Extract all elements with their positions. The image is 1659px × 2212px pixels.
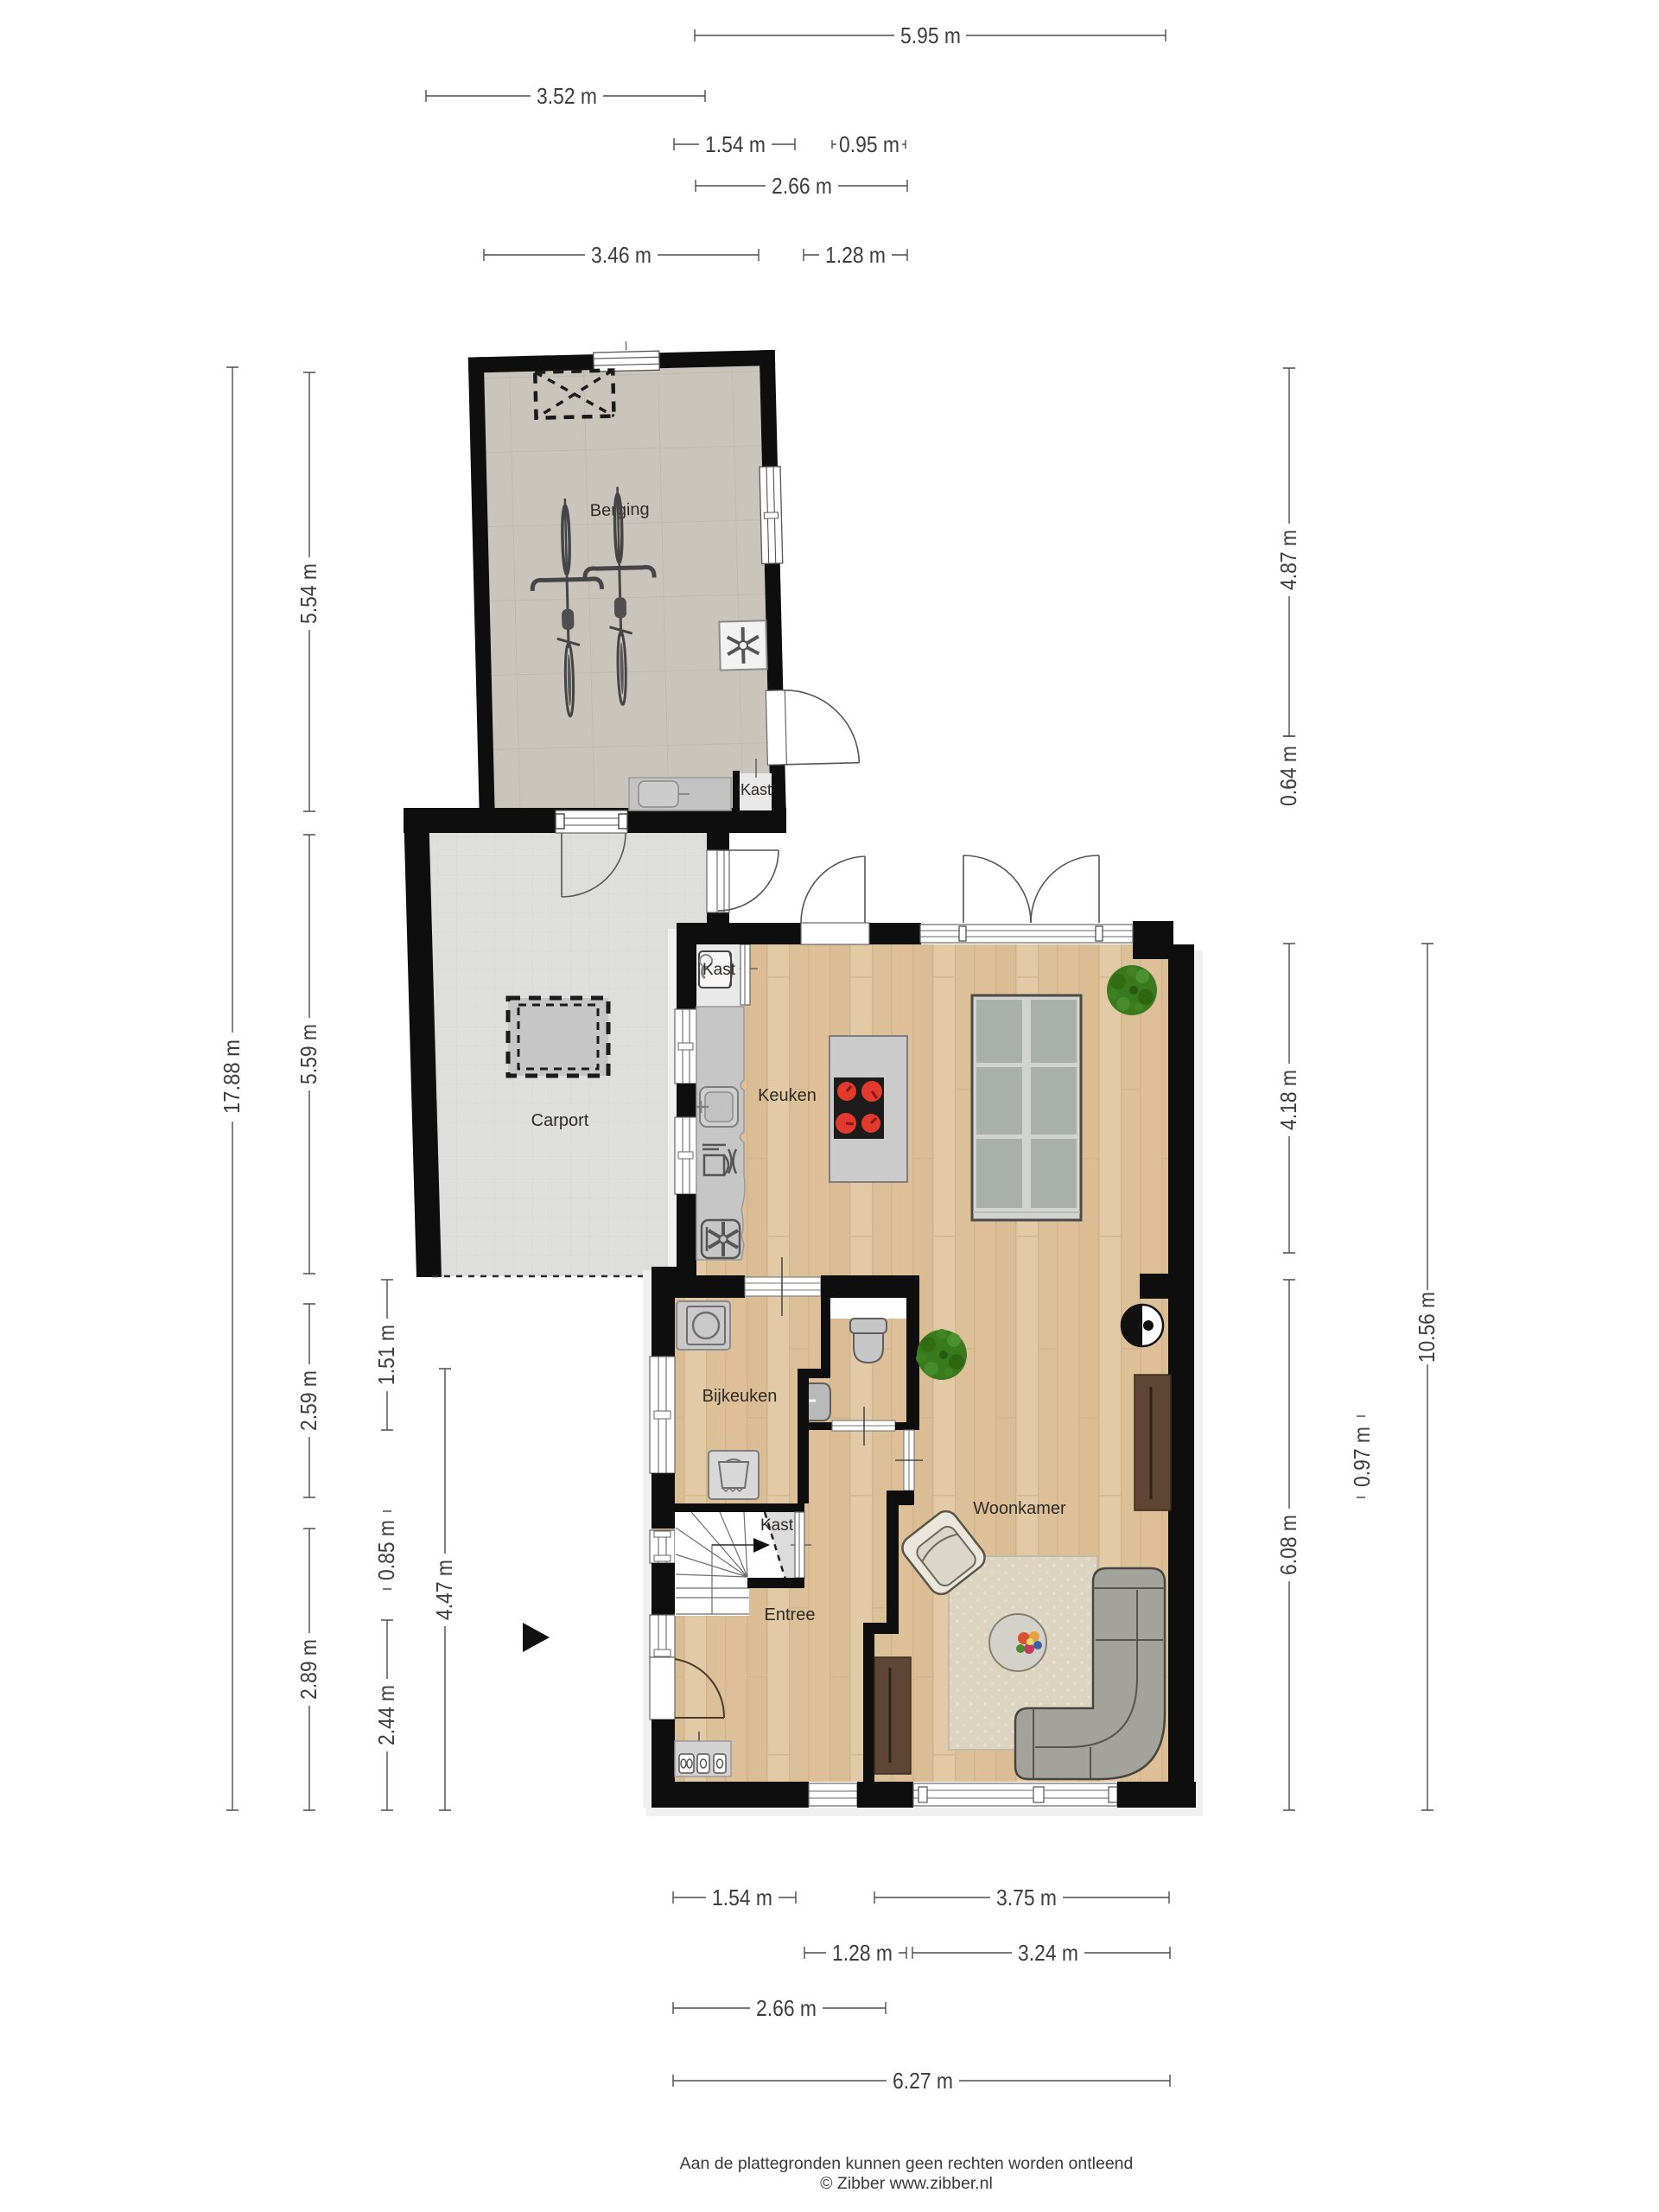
svg-text:Bijkeuken: Bijkeuken bbox=[702, 1387, 778, 1406]
svg-text:1.28 m: 1.28 m bbox=[825, 242, 886, 268]
svg-text:1.54 m: 1.54 m bbox=[705, 131, 766, 157]
svg-text:Kast: Kast bbox=[760, 1516, 794, 1535]
svg-text:Kast: Kast bbox=[702, 961, 736, 979]
svg-text:Aan de plattegronden kunnen ge: Aan de plattegronden kunnen geen rechten… bbox=[680, 2154, 1134, 2173]
svg-text:3.46 m: 3.46 m bbox=[591, 242, 652, 268]
svg-text:4.47 m: 4.47 m bbox=[431, 1560, 457, 1620]
svg-text:Woonkamer: Woonkamer bbox=[973, 1499, 1066, 1518]
svg-text:5.95 m: 5.95 m bbox=[900, 22, 961, 48]
svg-text:17.88 m: 17.88 m bbox=[219, 1039, 245, 1114]
svg-text:5.59 m: 5.59 m bbox=[296, 1024, 321, 1084]
svg-text:0.85 m: 0.85 m bbox=[373, 1520, 399, 1580]
svg-text:3.75 m: 3.75 m bbox=[996, 1885, 1057, 1910]
svg-text:1.28 m: 1.28 m bbox=[832, 1940, 893, 1966]
svg-text:Keuken: Keuken bbox=[758, 1086, 817, 1105]
svg-text:6.27 m: 6.27 m bbox=[893, 2068, 953, 2094]
svg-text:3.24 m: 3.24 m bbox=[1018, 1940, 1078, 1966]
svg-text:1.54 m: 1.54 m bbox=[712, 1885, 772, 1910]
svg-text:0.64 m: 0.64 m bbox=[1275, 746, 1301, 806]
svg-text:2.66 m: 2.66 m bbox=[756, 1995, 817, 2021]
svg-text:2.66 m: 2.66 m bbox=[772, 173, 832, 199]
svg-text:Entree: Entree bbox=[765, 1605, 816, 1624]
svg-text:4.87 m: 4.87 m bbox=[1275, 530, 1301, 590]
svg-text:Kast: Kast bbox=[741, 781, 772, 798]
svg-text:2.44 m: 2.44 m bbox=[373, 1685, 399, 1745]
svg-text:2.59 m: 2.59 m bbox=[296, 1370, 321, 1431]
svg-text:2.89 m: 2.89 m bbox=[296, 1639, 321, 1700]
svg-text:6.08 m: 6.08 m bbox=[1275, 1515, 1301, 1575]
svg-text:1.51 m: 1.51 m bbox=[373, 1325, 399, 1385]
svg-text:5.54 m: 5.54 m bbox=[296, 563, 321, 624]
svg-text:10.56 m: 10.56 m bbox=[1414, 1292, 1440, 1363]
svg-text:© Zibber www.zibber.nl: © Zibber www.zibber.nl bbox=[820, 2174, 993, 2193]
svg-text:0.97 m: 0.97 m bbox=[1349, 1427, 1375, 1487]
svg-text:3.52 m: 3.52 m bbox=[537, 83, 597, 109]
svg-text:4.18 m: 4.18 m bbox=[1275, 1070, 1301, 1130]
svg-text:0.95 m: 0.95 m bbox=[839, 131, 899, 157]
svg-text:Carport: Carport bbox=[531, 1111, 589, 1130]
